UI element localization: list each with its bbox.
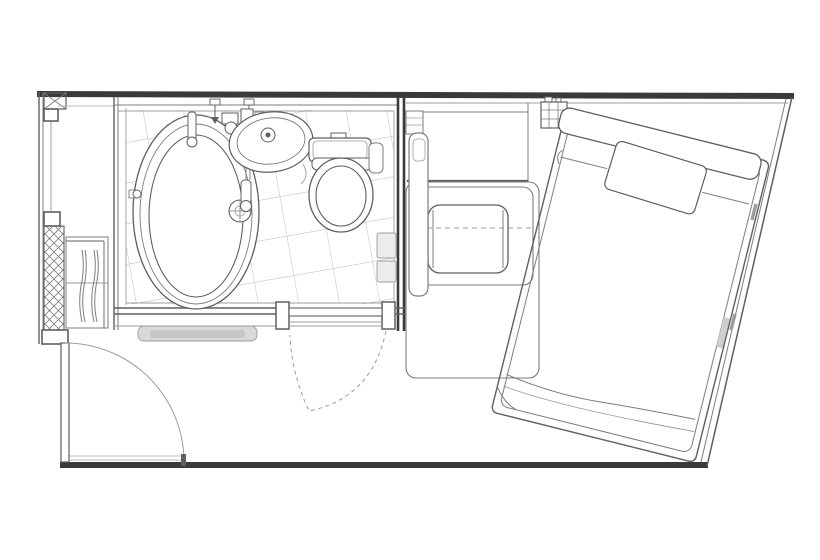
door-jamb-block	[42, 330, 68, 344]
toilet-seat	[309, 158, 373, 232]
entry-closet	[66, 237, 108, 328]
nightstand-nub-left	[545, 97, 552, 102]
appliance-box	[406, 111, 423, 134]
left-wall	[39, 92, 68, 344]
bathroom-door	[276, 302, 395, 411]
duvet-foot-fold-2	[503, 384, 694, 436]
bathroom-door-swing-arc	[290, 331, 386, 411]
entrance-door	[61, 343, 186, 466]
entrance-door-leaf	[61, 343, 69, 462]
hatched-pier	[44, 226, 64, 330]
bathroom-door-post-left	[276, 302, 289, 329]
bath-step-mat-core	[150, 330, 245, 338]
bathroom-door-leaf	[289, 308, 382, 316]
desk-zone	[406, 103, 539, 378]
bed	[487, 106, 771, 462]
floor-plan-canvas	[0, 0, 820, 560]
top-wall	[37, 94, 794, 96]
closet-hanging-item-1	[80, 250, 87, 322]
low-table	[411, 187, 533, 285]
counter-strip	[409, 133, 428, 296]
tub-overflow-knob	[129, 190, 141, 198]
duvet-foot-fold-1	[505, 372, 695, 426]
wall-return-mid	[44, 212, 60, 226]
entrance-door-stop	[181, 454, 186, 466]
closet-hanging-item-2	[92, 250, 99, 322]
wall-control-panel-upper	[377, 233, 396, 258]
chair	[428, 205, 508, 273]
washlet-side-arm	[369, 143, 383, 173]
wall-return-upper	[44, 109, 58, 121]
wall-control-panel-lower	[377, 261, 396, 282]
entrance-door-swing-arc	[65, 343, 184, 459]
bathroom-door-post-right	[382, 302, 395, 329]
unit-bathroom	[114, 95, 406, 411]
floor-plan-drawing	[0, 0, 820, 560]
